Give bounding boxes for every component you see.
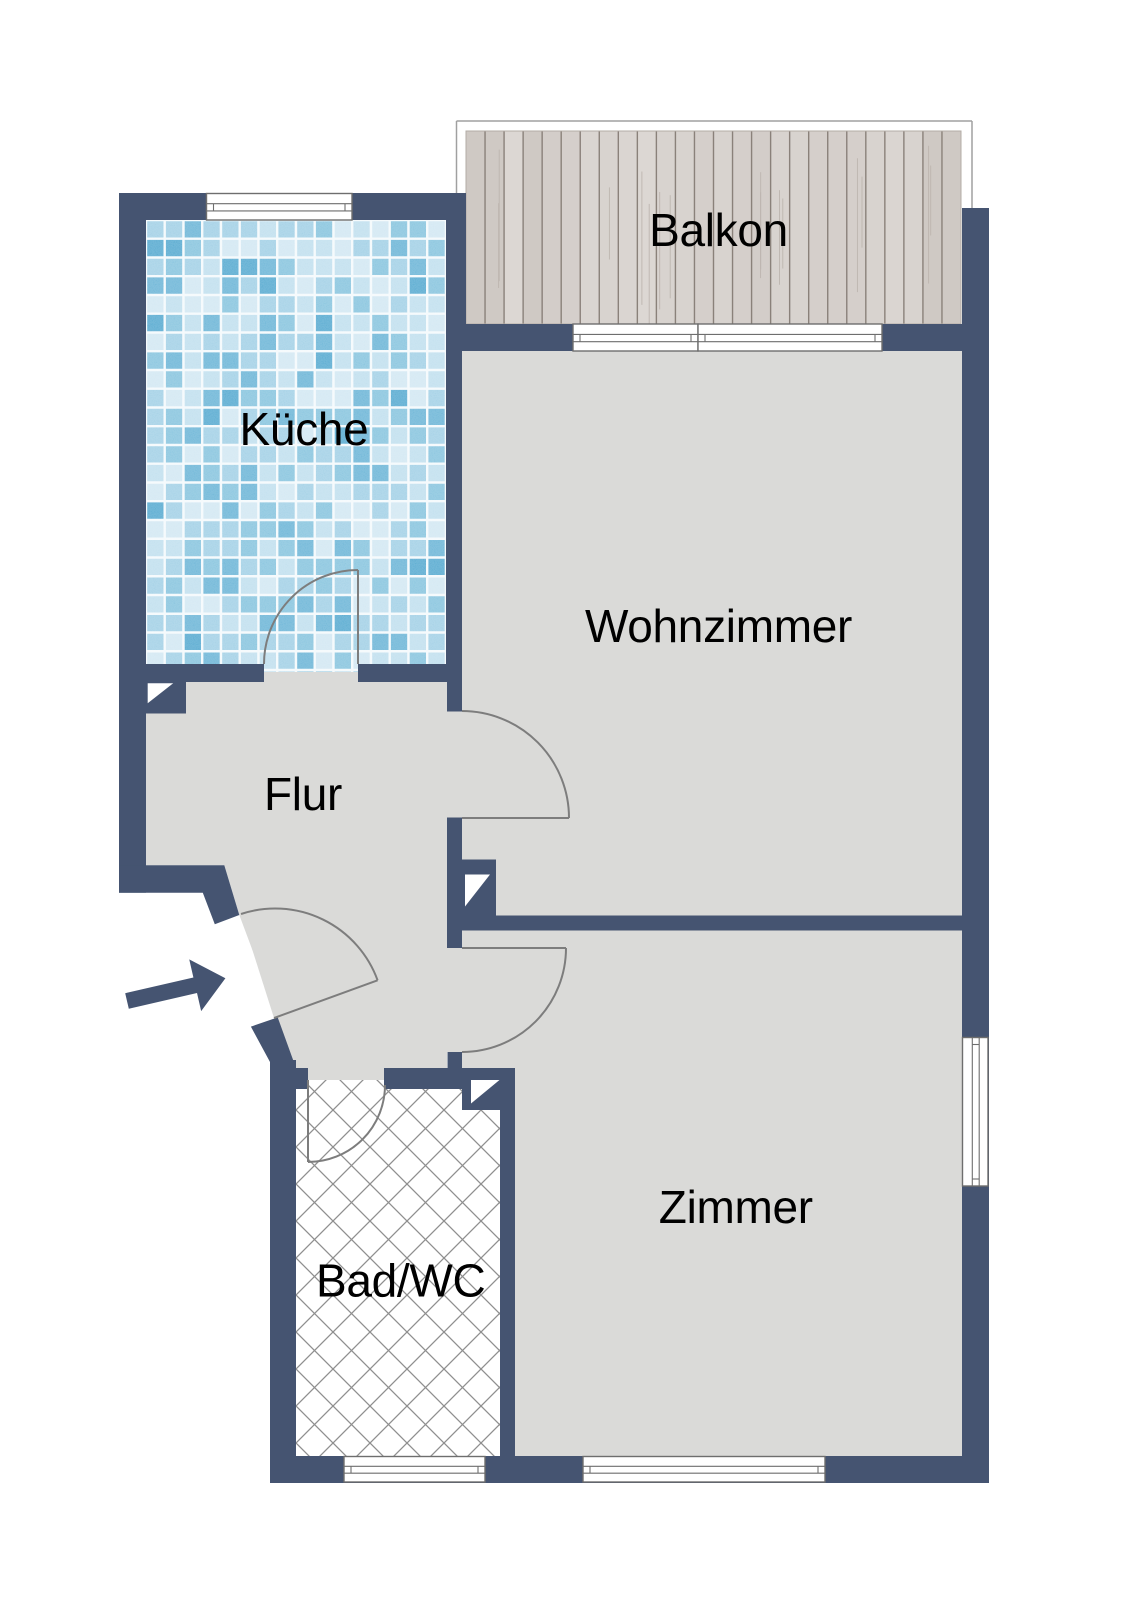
svg-text:Zimmer: Zimmer <box>659 1181 813 1233</box>
svg-text:Bad/WC: Bad/WC <box>316 1254 485 1306</box>
svg-text:Küche: Küche <box>240 403 369 455</box>
svg-text:Flur: Flur <box>264 768 342 820</box>
svg-text:Balkon: Balkon <box>649 204 788 256</box>
svg-text:Wohnzimmer: Wohnzimmer <box>585 600 852 652</box>
